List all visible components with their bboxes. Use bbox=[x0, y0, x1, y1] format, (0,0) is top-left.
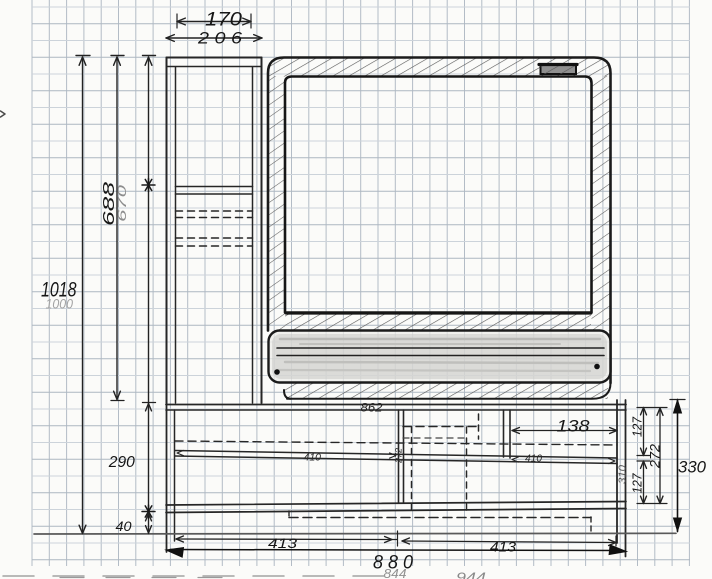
svg-text:170: 170 bbox=[205, 10, 243, 31]
svg-text:330: 330 bbox=[678, 458, 707, 477]
svg-text:944: 944 bbox=[456, 570, 486, 579]
svg-text:413: 413 bbox=[268, 535, 297, 551]
svg-text:413: 413 bbox=[490, 539, 516, 555]
svg-text:310: 310 bbox=[618, 465, 629, 484]
svg-text:410: 410 bbox=[304, 453, 322, 464]
svg-text:844: 844 bbox=[384, 567, 407, 579]
svg-text:127: 127 bbox=[631, 416, 645, 437]
svg-text:272: 272 bbox=[648, 443, 663, 469]
svg-text:127: 127 bbox=[631, 472, 645, 493]
svg-text:272: 272 bbox=[394, 447, 405, 464]
svg-text:2 0 6: 2 0 6 bbox=[197, 30, 243, 48]
svg-text:290: 290 bbox=[108, 454, 135, 471]
svg-text:410: 410 bbox=[525, 454, 542, 465]
svg-text:138: 138 bbox=[557, 418, 591, 436]
svg-text:40: 40 bbox=[116, 519, 133, 534]
svg-text:670: 670 bbox=[115, 184, 129, 222]
svg-text:1000: 1000 bbox=[46, 296, 74, 312]
svg-text:862: 862 bbox=[361, 401, 383, 415]
